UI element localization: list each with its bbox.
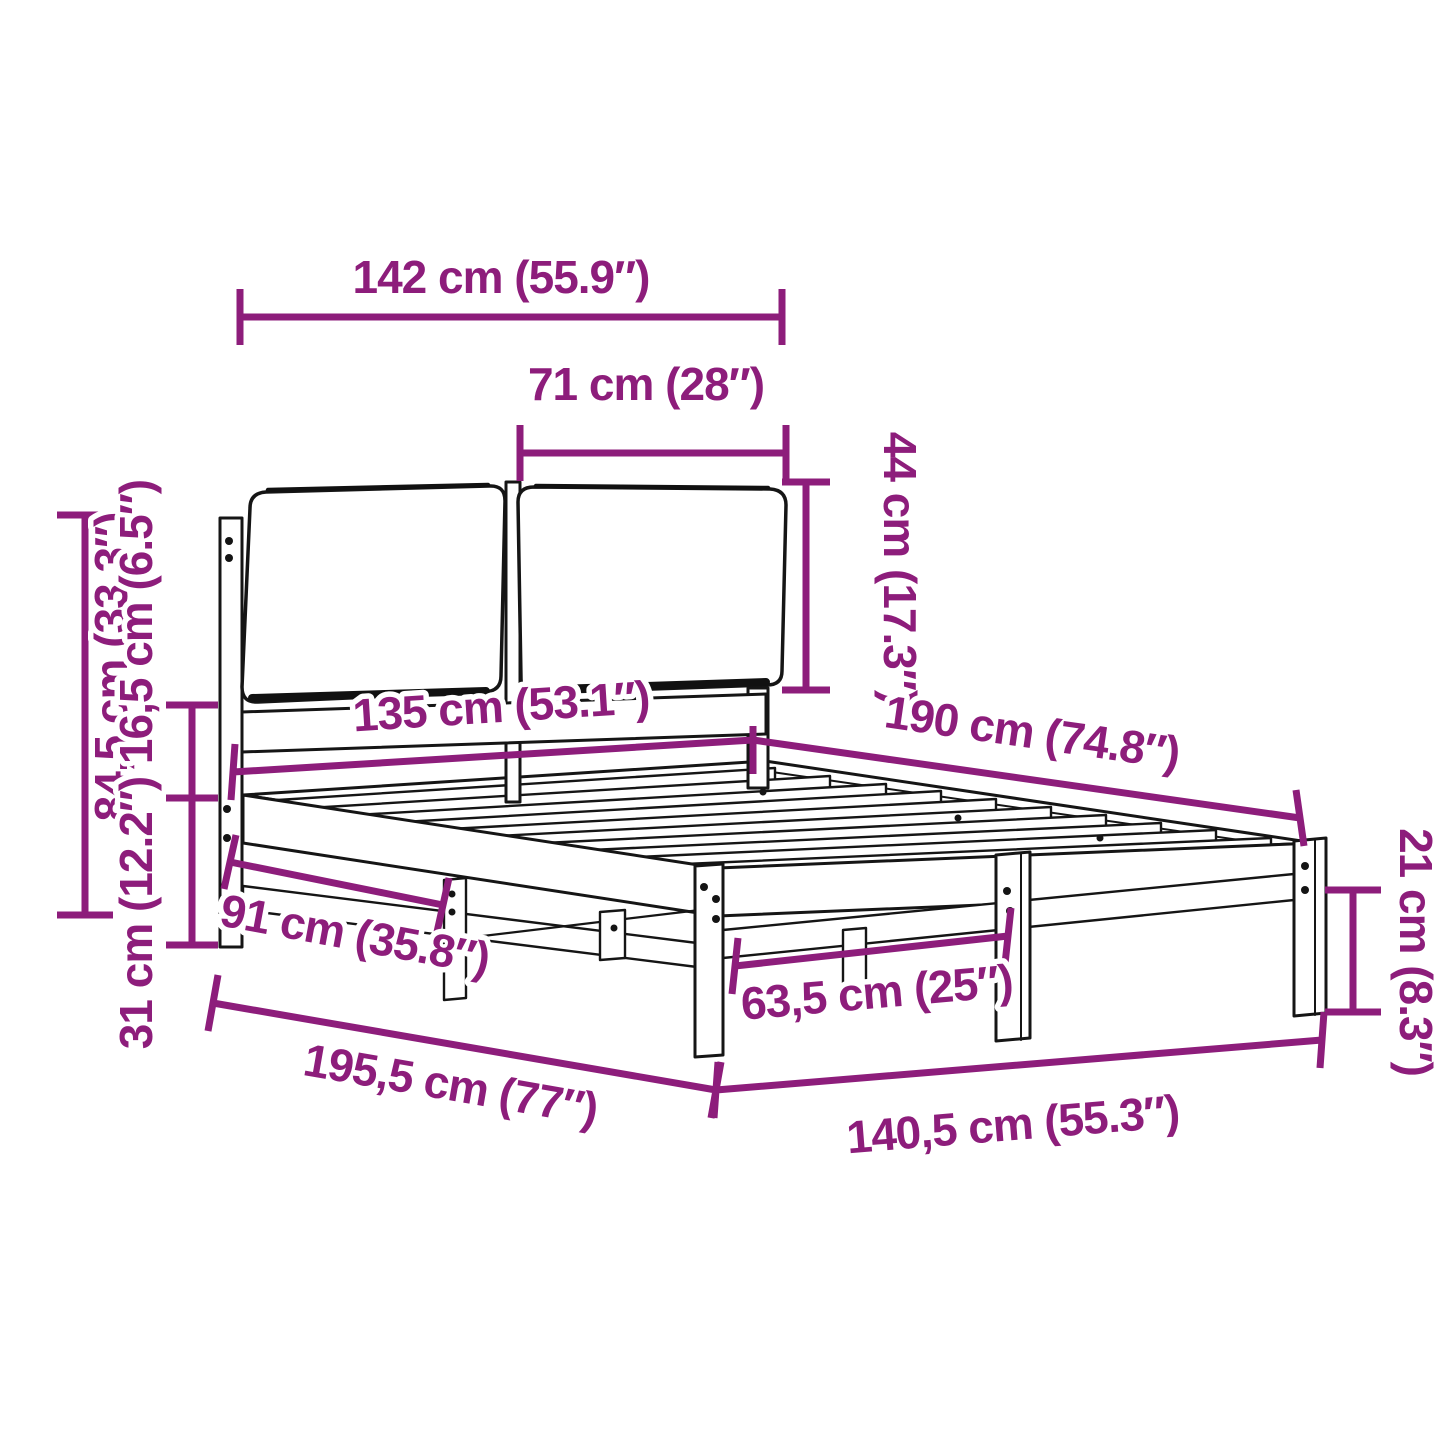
leg-foot-near [695,864,723,1057]
dim-label-foot-leg-spacing: 63,5 cm (25″) [739,954,1015,1030]
dim-label-frame-thickness: 16,5 cm (6.5″) [110,480,162,764]
leg-foot-middle [996,852,1030,1041]
headboard-cushion-right [518,487,786,693]
dim-label-overall-length: 195,5 cm (77″) [300,1033,602,1135]
headboard-cushion-left [242,486,505,702]
dimension-diagram: 142 cm (55.9″) 71 cm (28″) 44 cm (17.3″)… [0,0,1445,1445]
bed-dimension-drawing: 142 cm (55.9″) 71 cm (28″) 44 cm (17.3″)… [0,0,1445,1445]
dim-label-headboard-overall-width: 142 cm (55.9″) [353,251,650,303]
dim-label-overall-width: 140,5 cm (55.3″) [844,1085,1180,1164]
dim-label-underbed-clearance: 31 cm (12.2″) [110,777,162,1049]
leg-foot-far [1294,838,1326,1016]
dim-label-leg-height: 21 cm (8.3″) [1390,828,1442,1076]
dim-label-cushion-width: 71 cm (28″) [528,358,764,410]
dim-label-cushion-height: 44 cm (17.3″) [874,432,926,704]
